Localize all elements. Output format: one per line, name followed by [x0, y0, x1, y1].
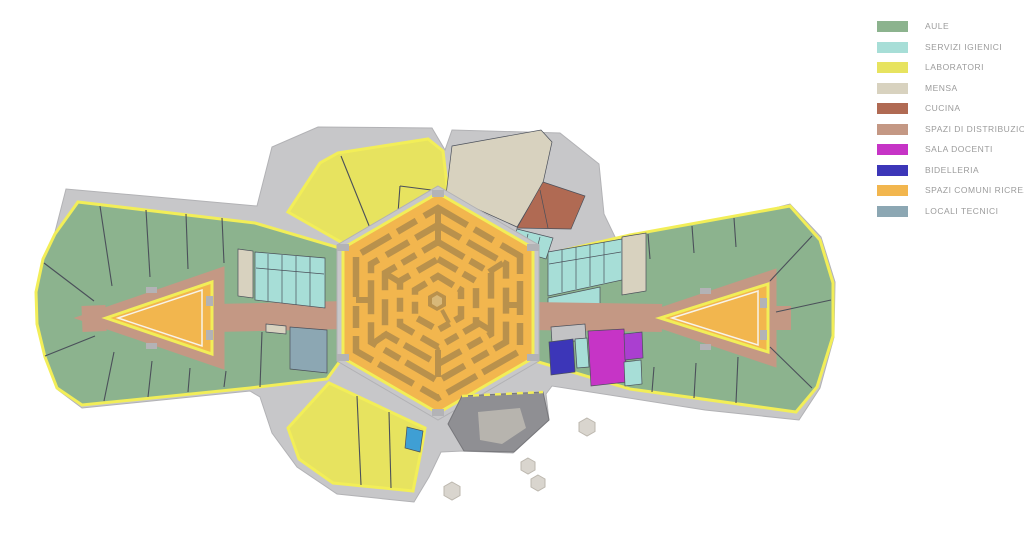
page: AULESERVIZI IGIENICILABORATORIMENSACUCIN…: [0, 0, 1024, 560]
left-storage-strip: [238, 249, 253, 298]
right-small-bathroom-a: [575, 338, 589, 368]
legend-item-sala_docenti: SALA DOCENTI: [877, 144, 1024, 155]
legend-item-bidelleria: BIDELLERIA: [877, 165, 1024, 176]
mensa-swatch: [877, 83, 908, 94]
servizi_igienici-label: SERVIZI IGIENICI: [925, 42, 1002, 53]
legend: AULESERVIZI IGIENICILABORATORIMENSACUCIN…: [877, 21, 1024, 226]
legend-item-laboratori: LABORATORI: [877, 62, 1024, 73]
locali_tecnici-label: LOCALI TECNICI: [925, 206, 998, 217]
locali_tecnici-swatch: [877, 206, 908, 217]
servizi_igienici-swatch: [877, 42, 908, 53]
legend-item-aule: AULE: [877, 21, 1024, 32]
left-technical-room: [290, 327, 327, 373]
sala-docenti-room: [588, 329, 627, 386]
spazi_di_distribuzione-swatch: [877, 124, 908, 135]
aule-swatch: [877, 21, 908, 32]
aule-label: AULE: [925, 21, 949, 32]
legend-item-spazi_comuni_ricreativi: SPAZI COMUNI RICREATIVI: [877, 185, 1024, 196]
left-bathrooms: [255, 252, 325, 308]
laboratori-swatch: [877, 62, 908, 73]
sala_docenti-swatch: [877, 144, 908, 155]
spazi_comuni_ricreativi-swatch: [877, 185, 908, 196]
mensa-label: MENSA: [925, 83, 958, 94]
laboratori-label: LABORATORI: [925, 62, 984, 73]
legend-item-locali_tecnici: LOCALI TECNICI: [877, 206, 1024, 217]
bidelleria-room: [549, 339, 575, 375]
spazi_comuni_ricreativi-label: SPAZI COMUNI RICREATIVI: [925, 185, 1024, 196]
bidelleria-label: BIDELLERIA: [925, 165, 979, 176]
right-small-bathroom-b: [624, 360, 642, 386]
legend-item-servizi_igienici: SERVIZI IGIENICI: [877, 42, 1024, 53]
legend-item-spazi_di_distribuzione: SPAZI DI DISTRIBUZIONE: [877, 124, 1024, 135]
floor-plan: [0, 0, 1024, 560]
blue-room: [405, 427, 423, 452]
exterior-elements: [444, 392, 595, 500]
bidelleria-swatch: [877, 165, 908, 176]
right-storage-strip: [622, 233, 646, 295]
sala_docenti-label: SALA DOCENTI: [925, 144, 993, 155]
spazi_di_distribuzione-label: SPAZI DI DISTRIBUZIONE: [925, 124, 1024, 135]
cucina-swatch: [877, 103, 908, 114]
left-small-storage: [266, 324, 286, 334]
right-purple-room: [624, 332, 643, 360]
legend-item-cucina: CUCINA: [877, 103, 1024, 114]
cucina-label: CUCINA: [925, 103, 961, 114]
legend-item-mensa: MENSA: [877, 83, 1024, 94]
